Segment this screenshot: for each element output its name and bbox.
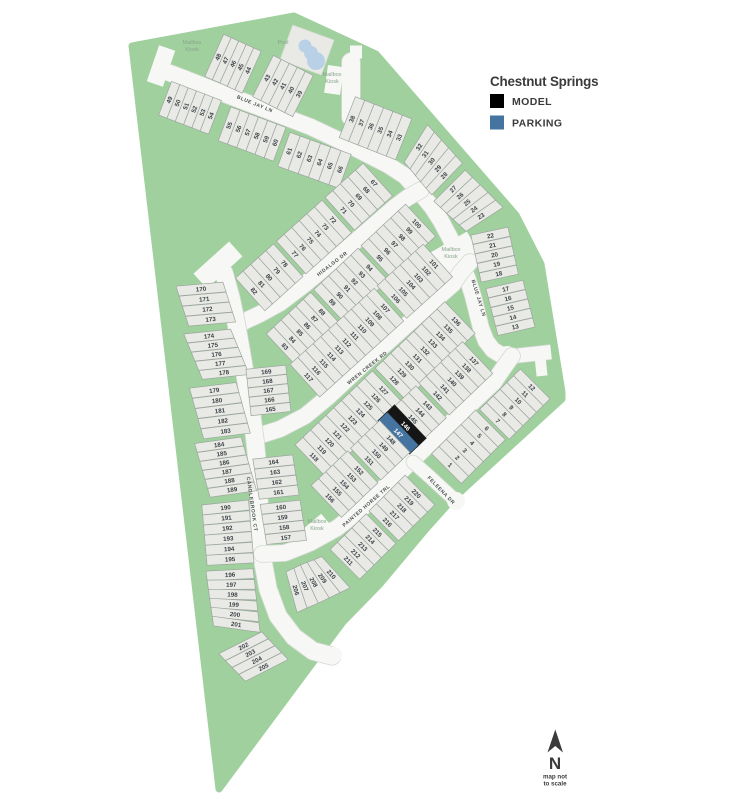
svg-text:Pool: Pool: [277, 40, 288, 46]
svg-text:185: 185: [216, 450, 228, 458]
svg-text:170: 170: [196, 286, 207, 294]
svg-text:168: 168: [262, 378, 274, 386]
svg-text:181: 181: [214, 407, 226, 415]
svg-text:195: 195: [225, 556, 236, 564]
svg-text:N: N: [549, 754, 561, 773]
svg-text:183: 183: [220, 428, 232, 436]
svg-text:174: 174: [204, 333, 216, 341]
svg-text:199: 199: [228, 601, 239, 609]
svg-text:map notto scale: map notto scale: [543, 774, 567, 788]
svg-text:198: 198: [227, 592, 238, 599]
svg-text:193: 193: [223, 535, 234, 543]
svg-text:194: 194: [224, 546, 235, 554]
svg-text:178: 178: [219, 369, 231, 377]
svg-text:159: 159: [277, 514, 289, 522]
svg-text:175: 175: [207, 342, 219, 350]
svg-text:163: 163: [270, 469, 282, 477]
svg-text:176: 176: [211, 351, 223, 359]
svg-text:171: 171: [199, 296, 210, 304]
svg-text:160: 160: [275, 504, 287, 512]
svg-text:190: 190: [220, 504, 232, 512]
svg-text:PARKING: PARKING: [512, 118, 562, 130]
svg-text:MODEL: MODEL: [512, 96, 552, 108]
svg-text:177: 177: [215, 360, 227, 368]
svg-text:200: 200: [229, 611, 241, 619]
svg-text:192: 192: [222, 525, 233, 533]
svg-text:167: 167: [263, 387, 275, 395]
svg-text:162: 162: [271, 479, 283, 487]
svg-text:196: 196: [225, 572, 236, 580]
svg-text:188: 188: [224, 477, 236, 485]
svg-text:161: 161: [273, 489, 285, 497]
svg-text:Chestnut Springs: Chestnut Springs: [490, 74, 598, 89]
svg-text:173: 173: [205, 316, 216, 324]
svg-text:201: 201: [231, 621, 243, 629]
svg-text:180: 180: [212, 397, 224, 405]
svg-text:191: 191: [221, 514, 232, 522]
svg-text:184: 184: [214, 441, 226, 449]
svg-text:172: 172: [202, 306, 213, 314]
svg-text:179: 179: [209, 387, 221, 395]
svg-text:158: 158: [279, 524, 291, 532]
svg-text:157: 157: [280, 534, 292, 542]
svg-text:197: 197: [226, 582, 237, 589]
svg-text:165: 165: [265, 406, 277, 414]
svg-text:186: 186: [219, 459, 231, 467]
svg-text:164: 164: [268, 459, 280, 467]
svg-text:187: 187: [221, 468, 233, 476]
svg-text:182: 182: [217, 417, 229, 425]
svg-text:169: 169: [261, 368, 273, 376]
svg-text:166: 166: [264, 396, 276, 404]
svg-text:189: 189: [227, 486, 239, 494]
